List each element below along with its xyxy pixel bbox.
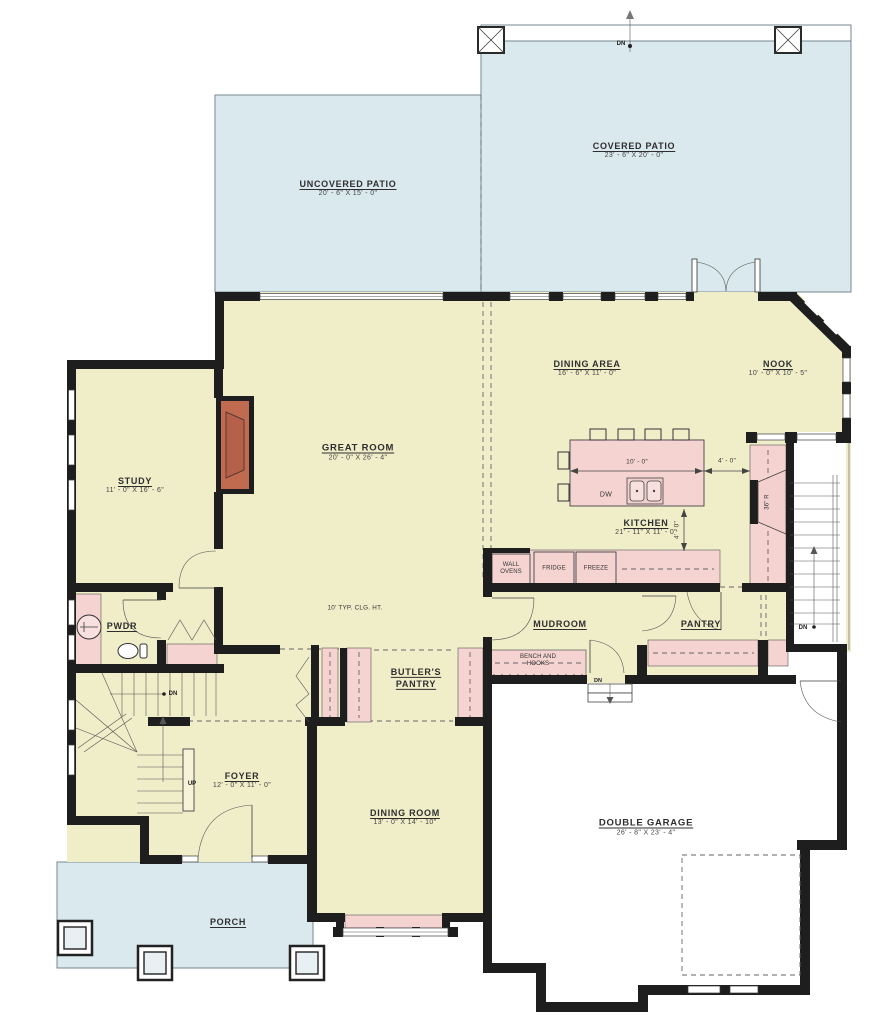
fridge-label: FRIDGE: [542, 566, 565, 573]
room-label-kitchen: KITCHEN 21' - 11" X 11' - 0": [615, 518, 677, 536]
freezer-label: FREEZE: [584, 566, 608, 573]
garage-steps-dn-label: DN: [594, 678, 602, 684]
room-name: BUTLER'S PANTRY: [385, 666, 447, 690]
room-name: DINING ROOM: [370, 808, 440, 818]
room-name: STUDY: [106, 476, 164, 486]
room-dims: 10' - 0" X 10' - 5": [749, 370, 808, 377]
room-label-study: STUDY 11' - 0" X 16' - 6": [106, 476, 164, 494]
room-label-nook: NOOK 10' - 0" X 10' - 5": [749, 359, 808, 377]
room-name: FOYER: [213, 771, 271, 781]
room-dims: 23' - 6" X 20' - 0": [593, 152, 676, 159]
island-width-dimension: 10' - 0": [626, 459, 648, 466]
fireplace-icon: [216, 396, 254, 494]
room-name: PANTRY: [681, 619, 721, 629]
island-to-counter-dimension: 4' - 0": [718, 458, 736, 465]
porch-column-icon: [290, 946, 324, 980]
room-dims: 11' - 0" X 16' - 6": [106, 487, 164, 494]
room-name: DOUBLE GARAGE: [599, 818, 693, 829]
room-label-porch: PORCH: [210, 917, 246, 927]
room-name: PWDR: [107, 621, 137, 631]
room-dims: 16' - 6" X 11' - 0": [553, 370, 620, 377]
porch-area: [57, 862, 313, 968]
room-label-pwdr: PWDR: [107, 621, 137, 631]
ceiling-height-note: 10' TYP. CLG. HT.: [328, 605, 383, 612]
patio-column-icon: [775, 27, 801, 53]
bay-window-seat: [345, 915, 445, 928]
porch-column-icon: [58, 921, 92, 955]
room-name: UNCOVERED PATIO: [300, 179, 397, 189]
powder-vanity: [75, 594, 101, 666]
bench-label-line1: BENCH AND: [520, 654, 556, 661]
room-label-double-garage: DOUBLE GARAGE 26' - 8" X 23' - 4": [599, 818, 693, 837]
basement-stairs-dn-label: DN: [799, 625, 808, 631]
bench-label-line2: HOOKS: [520, 661, 556, 668]
room-dims: 20' - 6" X 15' - 0": [300, 190, 397, 197]
room-dims: 20' - 0" X 26' - 4": [322, 455, 394, 462]
room-label-dining-room: DINING ROOM 13' - 0" X 14' - 10": [370, 808, 440, 826]
toilet-icon: [118, 644, 147, 659]
room-name: PORCH: [210, 917, 246, 927]
room-name: MUDROOM: [533, 619, 587, 629]
dishwasher-label: DW: [600, 492, 612, 499]
wall-ovens-label: WALL OVENS: [500, 562, 522, 576]
room-label-uncovered-patio: UNCOVERED PATIO 20' - 6" X 15' - 0": [300, 179, 397, 197]
room-label-foyer: FOYER 12' - 0" X 11' - 0": [213, 771, 271, 789]
closet-shelf: [167, 644, 217, 665]
room-label-butlers-pantry: BUTLER'S PANTRY: [385, 666, 447, 690]
room-dims: 12' - 0" X 11' - 0": [213, 782, 271, 789]
room-name: KITCHEN: [615, 518, 677, 528]
floor-plan-drawing: [0, 0, 876, 1024]
kitchen-sink-icon: [627, 478, 663, 504]
room-label-great-room: GREAT ROOM 20' - 0" X 26' - 4": [322, 443, 394, 462]
room-dims: 21' - 11" X 11' - 0": [615, 529, 677, 536]
floor-plan: COVERED PATIO 23' - 6" X 20' - 0" UNCOVE…: [0, 0, 876, 1024]
room-label-dining-area: DINING AREA 16' - 6" X 11' - 0": [553, 359, 620, 377]
stairs-up-label: UP: [188, 781, 196, 787]
patio-steps-dn-label: DN: [617, 41, 626, 47]
room-name: GREAT ROOM: [322, 443, 394, 454]
room-label-pantry: PANTRY: [681, 619, 721, 629]
wall-ovens-line1: WALL: [500, 562, 522, 569]
room-dims: 26' - 8" X 23' - 4": [599, 830, 693, 837]
room-label-mudroom: MUDROOM: [533, 619, 587, 629]
room-dims: 13' - 0" X 14' - 10": [370, 819, 440, 826]
bench-hooks-label: BENCH AND HOOKS: [520, 654, 556, 668]
island-depth-dimension: 4' - 0": [674, 521, 681, 539]
wall-ovens-line2: OVENS: [500, 569, 522, 576]
room-name: DINING AREA: [553, 359, 620, 369]
room-label-covered-patio: COVERED PATIO 23' - 6" X 20' - 0": [593, 141, 676, 159]
garage-steps: [588, 684, 632, 704]
room-name: COVERED PATIO: [593, 141, 676, 151]
range-label: 36" R: [765, 494, 772, 509]
stairs-dn-label: DN: [169, 691, 178, 697]
porch-column-icon: [138, 946, 172, 980]
room-name: NOOK: [749, 359, 808, 369]
patio-column-icon: [478, 27, 504, 53]
